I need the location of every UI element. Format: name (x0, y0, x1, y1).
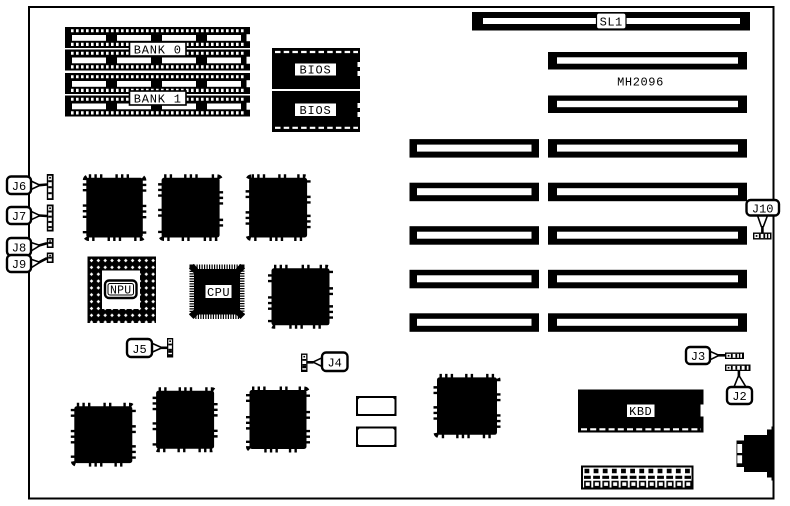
svg-text:CPU: CPU (207, 286, 230, 300)
svg-text:J2: J2 (732, 390, 746, 404)
svg-text:J8: J8 (12, 241, 26, 255)
svg-text:BANK 0: BANK 0 (134, 43, 182, 57)
svg-text:NPU: NPU (110, 284, 131, 297)
svg-text:J9: J9 (12, 258, 26, 272)
svg-text:J6: J6 (12, 180, 26, 194)
svg-text:SL1: SL1 (600, 16, 623, 30)
svg-text:BIOS: BIOS (299, 104, 331, 118)
svg-text:BIOS: BIOS (299, 64, 331, 78)
svg-text:J5: J5 (132, 343, 146, 357)
svg-text:BANK 1: BANK 1 (134, 92, 182, 106)
svg-text:KBD: KBD (629, 405, 652, 419)
svg-text:J10: J10 (752, 202, 774, 216)
svg-text:J7: J7 (12, 210, 26, 224)
svg-text:J3: J3 (691, 350, 705, 364)
svg-text:J4: J4 (327, 357, 341, 371)
svg-text:MH2096: MH2096 (617, 76, 664, 90)
